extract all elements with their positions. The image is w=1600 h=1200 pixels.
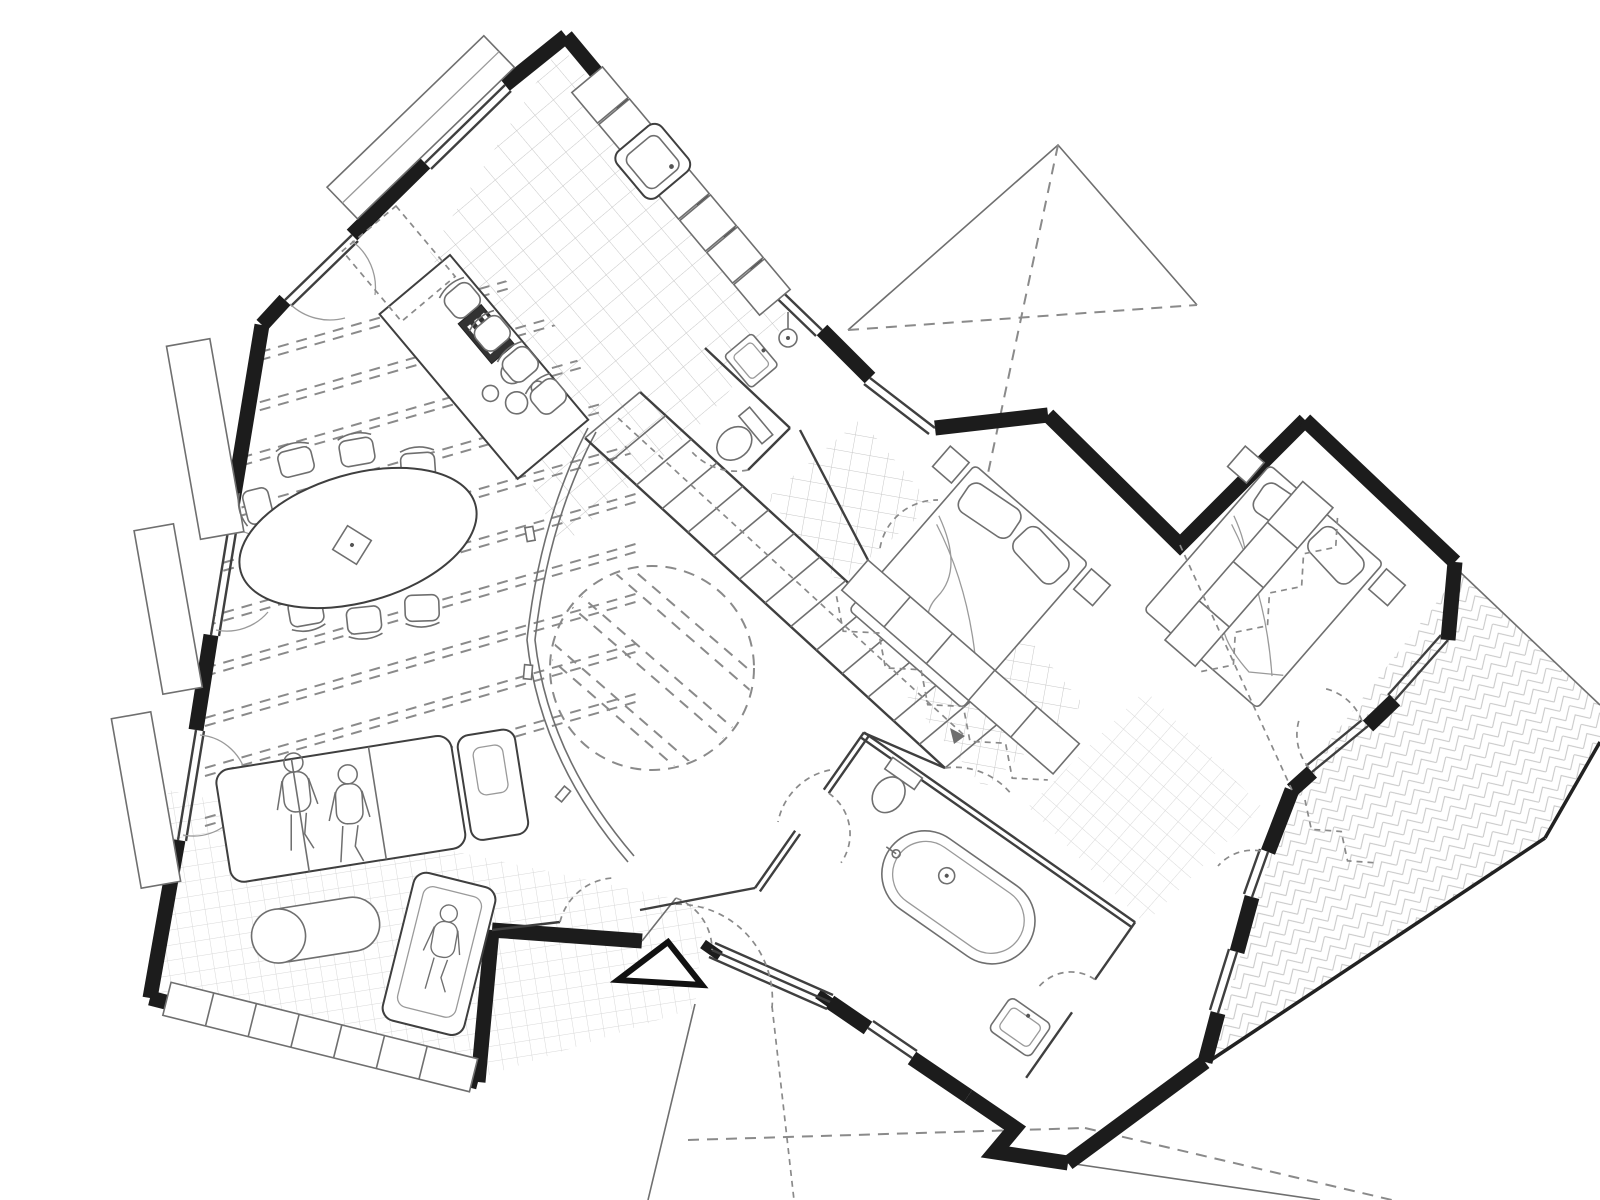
hall-dashed-arc-2 (778, 770, 830, 822)
floor-plan-canvas (0, 0, 1600, 1200)
master-rug-grid (1028, 690, 1262, 924)
planter-left-1 (166, 339, 243, 540)
window-bathroom (868, 1021, 917, 1058)
planter-left-2 (134, 524, 202, 694)
window-hall-topright (864, 378, 935, 434)
window-top-left-french (285, 235, 375, 320)
floor-plan-drawing (0, 0, 1600, 1200)
wc-toilet (708, 407, 773, 469)
bathroom-tub (862, 812, 1052, 981)
entrance-glazing (709, 943, 833, 1009)
void-circle-dashed (530, 549, 776, 785)
carport-x-outline (848, 145, 1197, 478)
bathroom-basin (988, 997, 1052, 1058)
